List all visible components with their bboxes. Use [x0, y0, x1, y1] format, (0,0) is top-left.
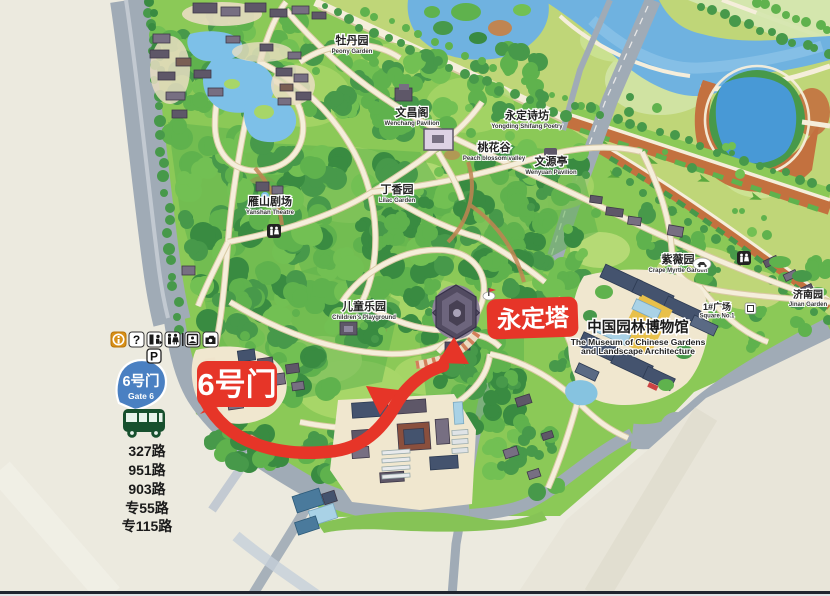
svg-text:Gate 6: Gate 6 — [128, 391, 154, 401]
svg-text:951路: 951路 — [128, 462, 166, 478]
svg-text:Wenchang Pavilion: Wenchang Pavilion — [385, 121, 440, 127]
svg-text:P: P — [150, 350, 158, 364]
svg-text:?: ? — [133, 333, 140, 347]
svg-text:Peach blossom valley: Peach blossom valley — [463, 156, 526, 162]
svg-text:Wenyuan Pavilion: Wenyuan Pavilion — [525, 170, 577, 176]
svg-text:Children's Playground: Children's Playground — [332, 315, 396, 321]
svg-text:中国园林博物馆: 中国园林博物馆 — [587, 318, 689, 336]
svg-text:Lilac Garden: Lilac Garden — [379, 198, 416, 204]
svg-text:Square No.1: Square No.1 — [699, 313, 735, 319]
svg-text:Peony Garden: Peony Garden — [332, 49, 373, 55]
svg-text:327路: 327路 — [128, 443, 166, 459]
svg-text:紫薇园: 紫薇园 — [662, 252, 695, 266]
svg-text:文昌阁: 文昌阁 — [396, 105, 429, 119]
svg-text:丁香园: 丁香园 — [381, 182, 414, 196]
svg-text:6号门: 6号门 — [122, 372, 159, 390]
svg-text:文源亭: 文源亭 — [535, 154, 568, 168]
svg-text:1#广场: 1#广场 — [703, 301, 731, 312]
svg-text:永定塔: 永定塔 — [497, 304, 571, 335]
svg-text:and Landscape Architecture: and Landscape Architecture — [581, 346, 695, 356]
svg-text:专115路: 专115路 — [122, 518, 174, 534]
svg-text:雁山剧场: 雁山剧场 — [248, 194, 292, 208]
svg-text:专55路: 专55路 — [125, 500, 170, 516]
svg-text:济南园: 济南园 — [793, 288, 823, 301]
svg-text:牡丹园: 牡丹园 — [336, 33, 369, 47]
svg-text:903路: 903路 — [128, 481, 166, 497]
svg-text:6号门: 6号门 — [197, 367, 276, 402]
svg-text:永定诗坊: 永定诗坊 — [504, 108, 549, 122]
svg-text:Yanshan Theatre: Yanshan Theatre — [246, 210, 295, 216]
svg-text:Jinan Garden: Jinan Garden — [789, 302, 828, 308]
svg-text:桃花谷: 桃花谷 — [478, 140, 512, 154]
svg-text:儿童乐园: 儿童乐园 — [341, 299, 386, 313]
svg-text:Yongding Shifang Poetry: Yongding Shifang Poetry — [491, 124, 563, 130]
